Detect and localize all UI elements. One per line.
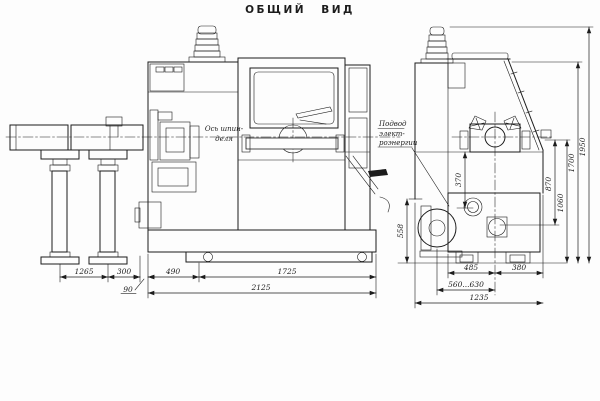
dim-300-label: 300 bbox=[117, 267, 132, 276]
anchor-hole-left bbox=[204, 253, 213, 262]
foot-left bbox=[456, 252, 478, 263]
dim-1700-label: 1700 bbox=[567, 153, 576, 172]
control-panel bbox=[150, 64, 184, 91]
drawing-canvas: ОБЩИЙ ВИД bbox=[0, 0, 600, 401]
dim-90-label: 90 bbox=[123, 285, 133, 294]
base-slab bbox=[186, 252, 372, 262]
foot-right bbox=[506, 252, 530, 263]
side-view: Подвод элект- роэнергии bbox=[378, 27, 566, 295]
front-view: Ось шпин- деля bbox=[6, 26, 400, 264]
anchor-hole-right bbox=[358, 253, 367, 262]
bed bbox=[148, 230, 376, 252]
control-lever bbox=[368, 169, 388, 177]
dim-2125-label: 2125 bbox=[250, 283, 270, 292]
dim-560-630-label: 560...630 bbox=[448, 280, 484, 289]
bar-feeder bbox=[10, 117, 143, 150]
headstock-details bbox=[135, 110, 199, 228]
feeder-stand-2 bbox=[89, 150, 127, 264]
dim-1060-label: 1060 bbox=[556, 193, 565, 212]
feeder-stand-1 bbox=[41, 150, 79, 264]
top-cover bbox=[452, 53, 508, 59]
power-supply-label: Подвод элект- роэнергии bbox=[378, 120, 449, 206]
feed-motor bbox=[139, 202, 161, 228]
cabinet-door-upper bbox=[349, 68, 367, 112]
spindle-axis-label-line2: деля bbox=[215, 135, 233, 143]
corner-block bbox=[448, 63, 465, 88]
slant-guard bbox=[508, 59, 543, 150]
power-label-line1: Подвод bbox=[378, 120, 407, 128]
power-label-leader bbox=[412, 148, 449, 206]
hose-side bbox=[421, 27, 453, 63]
dim-485-label: 485 bbox=[463, 263, 479, 272]
dim-1235-label: 1235 bbox=[469, 293, 488, 302]
dim-558-label: 558 bbox=[396, 224, 405, 239]
spindle-axis-label-line1: Ось шпин- bbox=[205, 125, 244, 133]
dim-1265-label: 1265 bbox=[74, 267, 93, 276]
hose-front bbox=[189, 26, 225, 62]
dim-370-label: 370 bbox=[454, 173, 463, 188]
tank-and-pump bbox=[418, 193, 540, 263]
dim-380-label: 380 bbox=[512, 263, 527, 272]
spindle-area bbox=[238, 118, 345, 162]
dim-1950-label: 1950 bbox=[578, 137, 587, 156]
drawing-title: ОБЩИЙ ВИД bbox=[245, 3, 355, 16]
general-view-drawing: ОБЩИЙ ВИД bbox=[0, 0, 600, 401]
coolant-tank bbox=[448, 193, 540, 252]
dim-870-label: 870 bbox=[544, 177, 553, 192]
dim-490-label: 490 bbox=[165, 267, 181, 276]
cabinet-door-lower bbox=[349, 118, 367, 168]
pump-housing bbox=[418, 209, 456, 247]
panel-button-3 bbox=[174, 67, 182, 72]
panel-button-1 bbox=[156, 67, 164, 72]
handwheel bbox=[489, 219, 506, 236]
dim-1725-label: 1725 bbox=[277, 267, 296, 276]
dimensions-side-vertical: 558 370 870 1060 1700 1950 bbox=[396, 27, 593, 263]
dim-90-leader bbox=[135, 279, 144, 290]
power-label-line2: элект- bbox=[379, 130, 405, 138]
panel-button-2 bbox=[165, 67, 173, 72]
handle bbox=[380, 197, 389, 212]
dimensions-front: 1265 300 90 490 1725 2125 bbox=[60, 254, 376, 298]
guard-window bbox=[250, 68, 338, 128]
power-label-line3: роэнергии bbox=[379, 139, 418, 147]
